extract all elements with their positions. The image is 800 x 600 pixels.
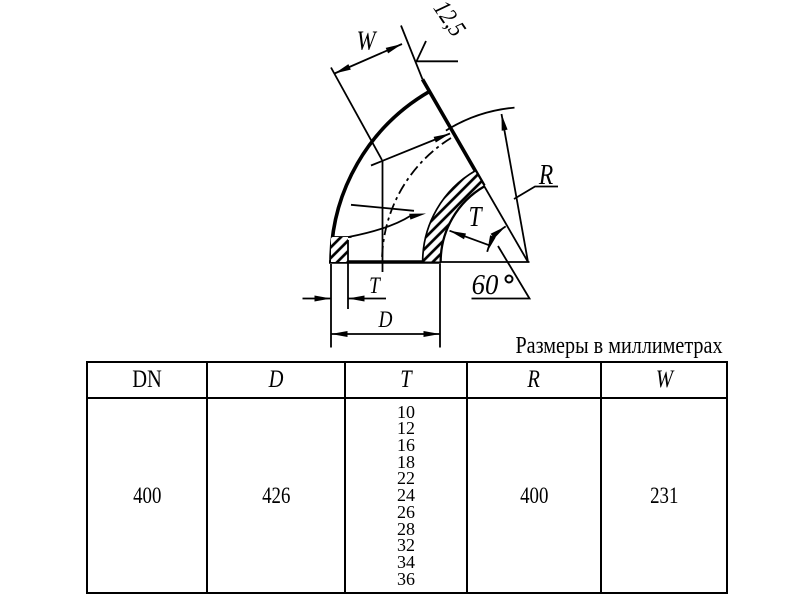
svg-text:D: D [378, 306, 393, 332]
svg-text:W: W [357, 27, 378, 56]
svg-text:T: T [369, 272, 382, 298]
svg-text:T: T [468, 201, 483, 232]
svg-text:60: 60 [472, 269, 499, 301]
svg-text:R: R [538, 159, 553, 190]
svg-text:12,5: 12,5 [428, 0, 472, 41]
